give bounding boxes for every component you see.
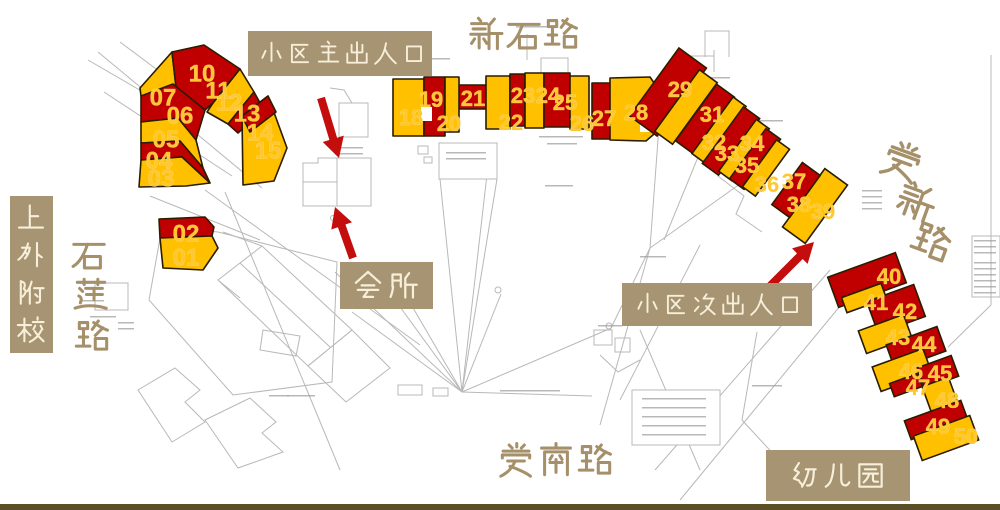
svg-text:21: 21 [461, 86, 485, 111]
svg-text:31: 31 [700, 102, 724, 127]
svg-text:22: 22 [499, 110, 523, 135]
svg-text:40: 40 [877, 264, 901, 289]
svg-text:01: 01 [173, 245, 200, 272]
svg-text:29: 29 [668, 77, 692, 102]
svg-text:19: 19 [419, 87, 443, 112]
svg-text:23: 23 [511, 83, 535, 108]
svg-text:41: 41 [864, 290, 888, 315]
svg-text:43: 43 [886, 325, 910, 350]
svg-text:27: 27 [592, 106, 616, 131]
svg-text:07: 07 [150, 85, 177, 112]
svg-text:47: 47 [906, 375, 930, 400]
svg-text:50: 50 [954, 424, 978, 449]
svg-text:20: 20 [437, 111, 461, 136]
svg-text:28: 28 [624, 100, 648, 125]
svg-text:38: 38 [787, 192, 811, 217]
svg-text:42: 42 [893, 299, 917, 324]
svg-text:49: 49 [926, 414, 950, 439]
svg-text:15: 15 [255, 138, 282, 165]
svg-text:26: 26 [570, 111, 594, 136]
svg-text:48: 48 [935, 388, 959, 413]
svg-text:02: 02 [173, 221, 200, 248]
svg-text:45: 45 [928, 361, 952, 386]
svg-text:44: 44 [912, 332, 937, 357]
svg-text:37: 37 [782, 169, 806, 194]
svg-text:05: 05 [153, 127, 180, 154]
svg-text:39: 39 [811, 199, 835, 224]
svg-text:36: 36 [755, 172, 779, 197]
